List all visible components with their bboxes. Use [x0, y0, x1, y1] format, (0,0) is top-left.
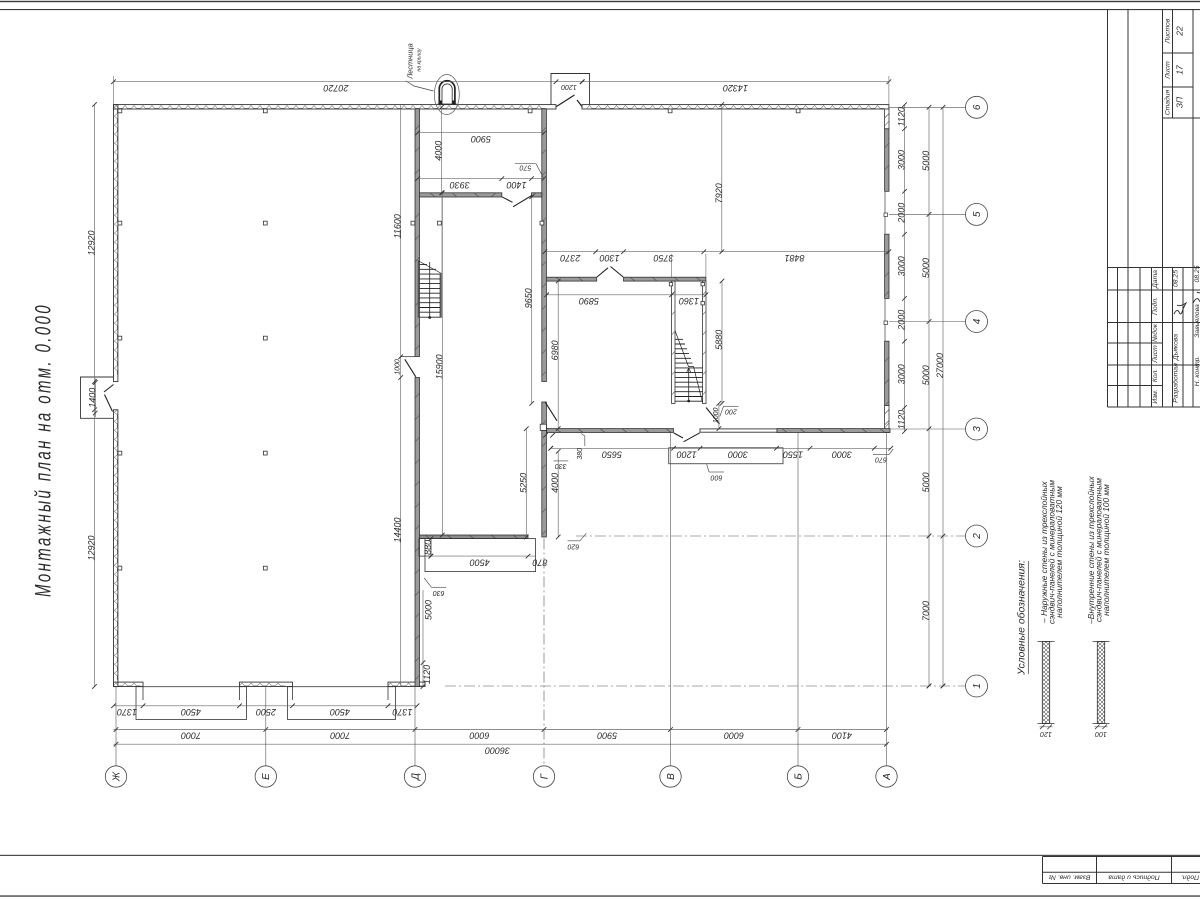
svg-text:1120: 1120 — [422, 665, 432, 684]
svg-text:100: 100 — [1095, 730, 1107, 737]
svg-text:5000: 5000 — [921, 472, 931, 492]
svg-text:14400: 14400 — [393, 517, 403, 542]
svg-text:1000: 1000 — [395, 359, 402, 375]
svg-text:1000: 1000 — [713, 408, 720, 424]
svg-text:5890: 5890 — [579, 296, 599, 306]
svg-text:22: 22 — [1175, 26, 1185, 37]
svg-text:4500: 4500 — [470, 557, 490, 567]
svg-text:1370: 1370 — [392, 707, 412, 717]
svg-text:200: 200 — [725, 407, 738, 414]
svg-text:Лист: Лист — [1152, 345, 1159, 364]
svg-text:1200: 1200 — [561, 83, 577, 90]
svg-text:12920: 12920 — [87, 230, 97, 255]
svg-text:Листов: Листов — [1165, 18, 1172, 44]
svg-text:7920: 7920 — [714, 183, 724, 203]
svg-text:Подпись и дата: Подпись и дата — [1108, 874, 1160, 882]
svg-text:5250: 5250 — [518, 473, 528, 493]
svg-text:2000: 2000 — [897, 203, 907, 224]
svg-text:5900: 5900 — [471, 134, 491, 144]
svg-text:11600: 11600 — [393, 214, 403, 238]
svg-text:4000: 4000 — [550, 473, 560, 493]
svg-text:Дата: Дата — [1152, 270, 1159, 289]
svg-text:3750: 3750 — [654, 253, 674, 263]
svg-text:570: 570 — [520, 163, 532, 170]
svg-text:670: 670 — [875, 455, 887, 462]
svg-text:630: 630 — [433, 589, 445, 596]
svg-text:2: 2 — [972, 533, 983, 540]
svg-text:5650: 5650 — [602, 450, 622, 460]
svg-text:Условные обозначения:: Условные обозначения: — [1016, 560, 1028, 676]
svg-text:наполнителем толщиной 120 мм: наполнителем толщиной 120 мм — [1054, 486, 1064, 618]
svg-text:120: 120 — [1040, 730, 1052, 737]
svg-text:1370: 1370 — [117, 707, 137, 717]
svg-text:5900: 5900 — [597, 731, 617, 741]
svg-text:2000: 2000 — [897, 310, 907, 331]
svg-text:ЗП: ЗП — [1175, 96, 1185, 108]
svg-text:3000: 3000 — [832, 450, 852, 460]
svg-text:Дьякова: Дьякова — [1173, 334, 1180, 361]
svg-text:5000: 5000 — [921, 365, 931, 385]
svg-text:Лист: Лист — [1165, 61, 1172, 80]
svg-text:17: 17 — [1175, 65, 1185, 75]
svg-text:Взам. инв. №: Взам. инв. № — [1048, 874, 1090, 881]
svg-text:6: 6 — [972, 104, 983, 110]
svg-text:4100: 4100 — [832, 731, 852, 741]
svg-text:2370: 2370 — [560, 253, 581, 263]
svg-text:Ж: Ж — [111, 771, 122, 782]
svg-text:08.25: 08.25 — [1173, 270, 1180, 287]
svg-text:14320: 14320 — [723, 83, 748, 93]
svg-text:Подл.: Подл. — [1181, 874, 1199, 882]
svg-text:12920: 12920 — [87, 535, 97, 560]
svg-text:1550: 1550 — [783, 450, 803, 460]
svg-text:9650: 9650 — [524, 288, 534, 308]
svg-text:5: 5 — [972, 211, 983, 217]
svg-text:3: 3 — [972, 426, 983, 432]
svg-text:Изм.: Изм. — [1152, 389, 1159, 404]
svg-text:870: 870 — [532, 557, 547, 567]
svg-text:Б: Б — [793, 773, 804, 780]
svg-text:1: 1 — [972, 683, 983, 689]
svg-text:8481: 8481 — [785, 253, 805, 263]
svg-text:А: А — [882, 773, 893, 781]
svg-text:4: 4 — [972, 318, 983, 324]
svg-text:7000: 7000 — [330, 731, 350, 741]
svg-text:20720: 20720 — [323, 83, 349, 93]
svg-text:1200: 1200 — [677, 450, 697, 460]
svg-text:Лестница: Лестница — [406, 43, 415, 80]
svg-text:Подп.: Подп. — [1151, 297, 1159, 315]
svg-text:1120: 1120 — [897, 107, 907, 126]
svg-text:3000: 3000 — [897, 364, 907, 384]
svg-text:В: В — [666, 773, 677, 780]
svg-text:1400: 1400 — [507, 180, 527, 190]
svg-text:1120: 1120 — [897, 410, 907, 429]
svg-text:7000: 7000 — [921, 601, 931, 621]
svg-text:3930: 3930 — [450, 180, 470, 190]
svg-text:1400: 1400 — [87, 388, 97, 408]
svg-text:3000: 3000 — [728, 450, 748, 460]
svg-text:620: 620 — [567, 542, 579, 549]
svg-text:5880: 5880 — [714, 330, 724, 350]
svg-text:Н. контр.: Н. контр. — [1194, 356, 1200, 387]
svg-text:4000: 4000 — [434, 141, 444, 161]
svg-text:Д: Д — [410, 773, 421, 781]
svg-text:08.25: 08.25 — [1194, 265, 1200, 282]
svg-text:4500: 4500 — [330, 707, 350, 717]
svg-text:№док: №док — [1151, 323, 1159, 342]
svg-text:5000: 5000 — [921, 258, 931, 278]
svg-text:3000: 3000 — [897, 256, 907, 276]
svg-text:4500: 4500 — [181, 707, 201, 717]
svg-text:на крышу: на крышу — [417, 48, 423, 72]
svg-text:5000: 5000 — [921, 151, 931, 171]
svg-text:1300: 1300 — [600, 253, 620, 263]
svg-text:Е: Е — [261, 773, 272, 780]
svg-text:1360: 1360 — [679, 296, 699, 306]
svg-text:Монтажный план на отм. 0.000: Монтажный план на отм. 0.000 — [30, 303, 54, 597]
svg-text:15900: 15900 — [434, 354, 444, 379]
svg-text:6980: 6980 — [550, 340, 560, 360]
svg-text:Завьялова: Завьялова — [1194, 304, 1200, 338]
svg-text:880: 880 — [423, 540, 433, 555]
svg-text:Стадия: Стадия — [1164, 89, 1172, 115]
svg-text:36000: 36000 — [485, 745, 510, 755]
svg-text:2500: 2500 — [256, 707, 277, 717]
svg-text:5000: 5000 — [423, 600, 433, 620]
svg-text:600: 600 — [711, 474, 723, 481]
svg-text:Г: Г — [539, 772, 550, 779]
svg-text:наполнителем толщиной 100 мм: наполнителем толщиной 100 мм — [1101, 484, 1111, 616]
svg-text:6000: 6000 — [469, 731, 489, 741]
svg-text:3000: 3000 — [897, 150, 907, 170]
svg-text:Кол.: Кол. — [1152, 369, 1159, 382]
svg-text:Разработал: Разработал — [1172, 363, 1180, 403]
svg-text:330: 330 — [555, 462, 567, 469]
svg-text:6000: 6000 — [724, 731, 744, 741]
svg-text:380: 380 — [577, 448, 584, 460]
svg-text:27000: 27000 — [935, 353, 945, 379]
svg-text:7000: 7000 — [181, 731, 201, 741]
